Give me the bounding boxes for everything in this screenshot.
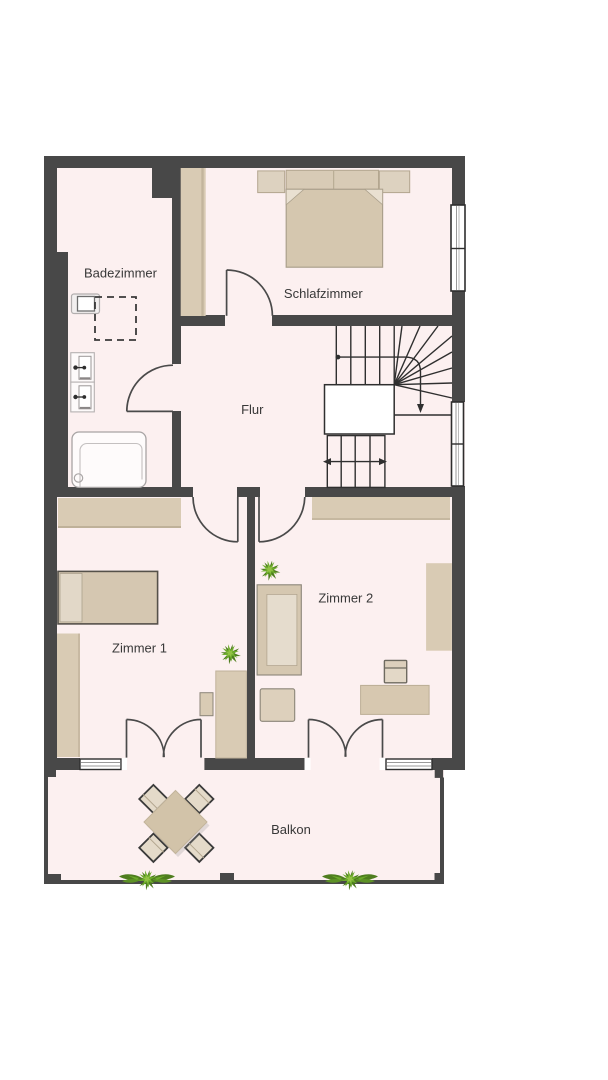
svg-text:Schlafzimmer: Schlafzimmer xyxy=(284,286,363,301)
svg-text:Balkon: Balkon xyxy=(271,822,311,837)
svg-text:Zimmer 2: Zimmer 2 xyxy=(318,591,373,606)
svg-text:Badezimmer: Badezimmer xyxy=(84,266,158,281)
svg-text:Zimmer 1: Zimmer 1 xyxy=(112,641,167,656)
svg-text:Flur: Flur xyxy=(241,402,264,417)
